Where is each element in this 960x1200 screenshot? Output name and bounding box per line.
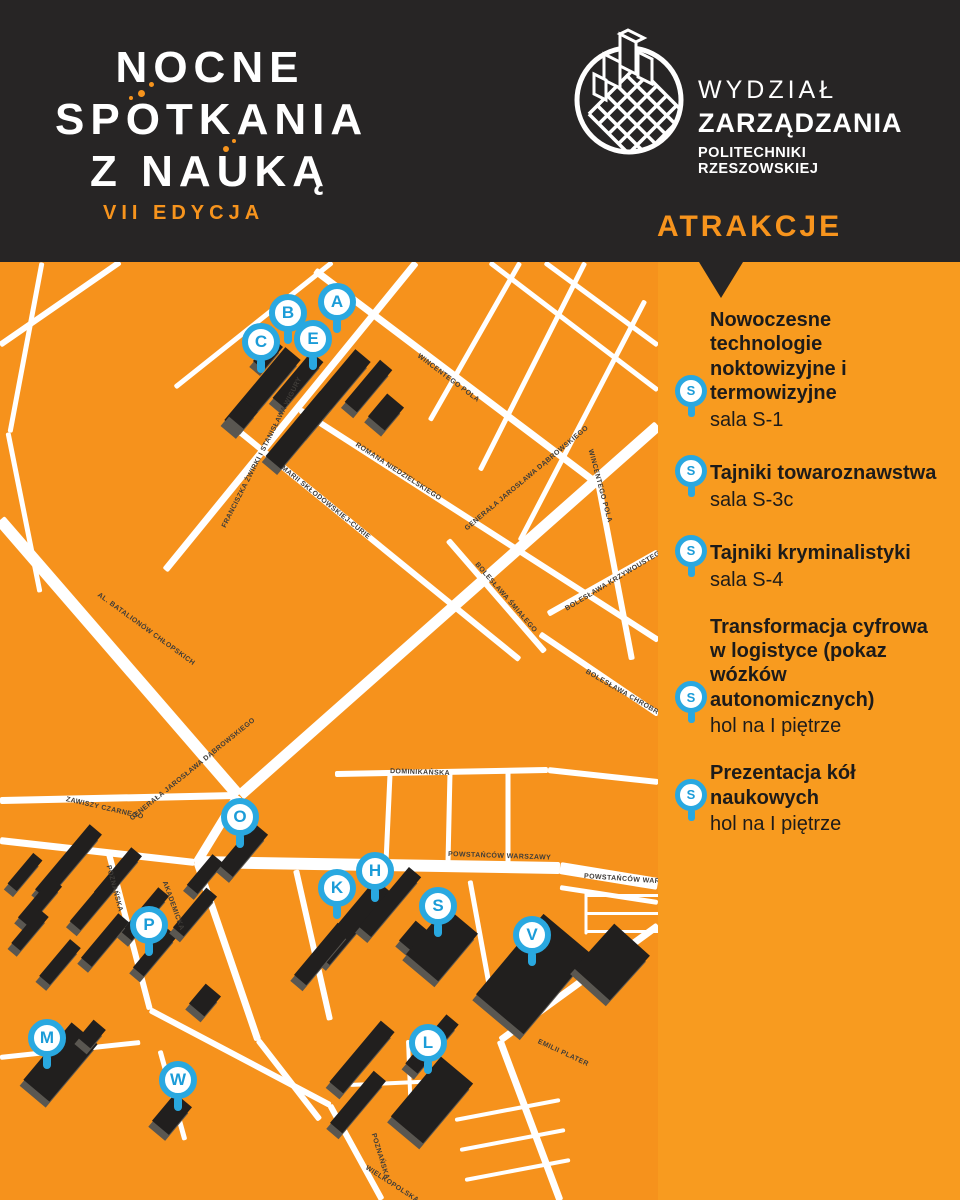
faculty-logo-text: WYDZIAŁ ZARZĄDZANIA POLITECHNIKI RZESZOW… — [698, 76, 928, 177]
pin-stem-icon — [424, 1059, 432, 1074]
attraction-title: Tajniki kryminalistyki — [710, 541, 938, 565]
faculty-name-line3: POLITECHNIKI RZESZOWSKIEJ — [698, 145, 928, 177]
map-pin-P: P — [130, 906, 168, 956]
pin-circle: S — [675, 779, 707, 811]
pin-circle: K — [318, 869, 356, 907]
campus-map: WINCENTEGO POLAWINCENTEGO POLAFRANCISZKA… — [0, 262, 658, 1200]
pin-stem-icon — [333, 318, 341, 333]
faculty-name-line1: WYDZIAŁ — [698, 76, 928, 105]
location-pin-icon: S — [672, 455, 710, 497]
event-logo-line2: SPOTKANIA — [55, 94, 365, 146]
event-logo-line1: NOCNE — [55, 42, 365, 94]
map-pins-layer: ABCEOHKSVPMLW — [0, 262, 658, 1200]
attraction-location: hol na I piętrze — [710, 714, 938, 739]
pin-stem-icon — [688, 405, 695, 417]
attraction-location: sala S-1 — [710, 408, 938, 433]
pin-stem-icon — [309, 355, 317, 370]
attractions-list: SNowoczesne technologie noktowizyjne i t… — [672, 308, 952, 859]
attraction-item: STajniki towaroznawstwasala S-3c — [672, 455, 952, 513]
pin-circle: S — [675, 681, 707, 713]
pin-stem-icon — [688, 485, 695, 497]
attraction-location: sala S-3c — [710, 488, 938, 513]
map-pin-V: V — [513, 916, 551, 966]
pin-circle: L — [409, 1024, 447, 1062]
attraction-location: sala S-4 — [710, 568, 938, 593]
attraction-title: Transformacja cyfrowa w logistyce (pokaz… — [710, 615, 938, 713]
attraction-title: Prezentacja kół naukowych — [710, 761, 938, 810]
pin-circle: H — [356, 852, 394, 890]
attraction-text: Tajniki kryminalistykisala S-4 — [710, 541, 938, 592]
pin-stem-icon — [528, 951, 536, 966]
faculty-name-line2: ZARZĄDZANIA — [698, 108, 928, 139]
header: NOCNE SPOTKANIA Z NAUKĄ VII EDYCJA — [0, 0, 960, 262]
pin-stem-icon — [43, 1054, 51, 1069]
pin-circle: M — [28, 1019, 66, 1057]
pin-circle: S — [419, 887, 457, 925]
flask-bubble-icon — [129, 96, 133, 100]
attraction-item: STransformacja cyfrowa w logistyce (poka… — [672, 615, 952, 740]
attraction-title: Tajniki towaroznawstwa — [710, 461, 938, 485]
map-pin-O: O — [221, 798, 259, 848]
pin-circle: S — [675, 455, 707, 487]
pin-circle: P — [130, 906, 168, 944]
attraction-title: Nowoczesne technologie noktowizyjne i te… — [710, 308, 938, 406]
map-pin-E: E — [294, 320, 332, 370]
attraction-text: Tajniki towaroznawstwasala S-3c — [710, 461, 938, 512]
map-pin-K: K — [318, 869, 356, 919]
faculty-logo-mark — [570, 26, 688, 158]
pin-circle: S — [675, 375, 707, 407]
pin-stem-icon — [688, 809, 695, 821]
pin-stem-icon — [236, 833, 244, 848]
location-pin-icon: S — [672, 681, 710, 723]
flask-bubble-icon — [138, 90, 145, 97]
poster: NOCNE SPOTKANIA Z NAUKĄ VII EDYCJA — [0, 0, 960, 1200]
pin-stem-icon — [284, 329, 292, 344]
pin-circle: S — [675, 535, 707, 567]
location-pin-icon: S — [672, 779, 710, 821]
map-pin-L: L — [409, 1024, 447, 1074]
attraction-location: hol na I piętrze — [710, 812, 938, 837]
event-logo: NOCNE SPOTKANIA Z NAUKĄ VII EDYCJA — [55, 42, 365, 225]
pin-circle: W — [159, 1061, 197, 1099]
map-pin-C: C — [242, 323, 280, 373]
attraction-text: Transformacja cyfrowa w logistyce (pokaz… — [710, 615, 938, 740]
pin-stem-icon — [371, 887, 379, 902]
pin-circle: C — [242, 323, 280, 361]
pin-stem-icon — [688, 711, 695, 723]
map-pin-M: M — [28, 1019, 66, 1069]
pin-stem-icon — [145, 941, 153, 956]
map-pin-S: S — [419, 887, 457, 937]
flask-bubble-icon — [223, 146, 229, 152]
attraction-item: STajniki kryminalistykisala S-4 — [672, 535, 952, 593]
attraction-text: Nowoczesne technologie noktowizyjne i te… — [710, 308, 938, 433]
attraction-text: Prezentacja kół naukowychhol na I piętrz… — [710, 761, 938, 837]
faculty-logo: WYDZIAŁ ZARZĄDZANIA POLITECHNIKI RZESZOW… — [570, 26, 688, 158]
map-pin-H: H — [356, 852, 394, 902]
pin-circle: A — [318, 283, 356, 321]
attractions-panel: SNowoczesne technologie noktowizyjne i t… — [658, 262, 960, 1200]
flask-bubble-icon — [232, 139, 236, 143]
pin-stem-icon — [333, 904, 341, 919]
pin-stem-icon — [174, 1096, 182, 1111]
attractions-heading: ATRAKCJE — [657, 210, 842, 244]
event-logo-line3: Z NAUKĄ — [55, 146, 365, 198]
location-pin-icon: S — [672, 375, 710, 417]
location-pin-icon: S — [672, 535, 710, 577]
flask-bubble-icon — [149, 82, 154, 87]
pin-stem-icon — [257, 358, 265, 373]
pin-stem-icon — [688, 565, 695, 577]
pin-circle: V — [513, 916, 551, 954]
attraction-item: SNowoczesne technologie noktowizyjne i t… — [672, 308, 952, 433]
map-pin-W: W — [159, 1061, 197, 1111]
pin-circle: E — [294, 320, 332, 358]
pin-stem-icon — [434, 922, 442, 937]
pin-circle: O — [221, 798, 259, 836]
event-edition: VII EDYCJA — [55, 202, 365, 225]
attraction-item: SPrezentacja kół naukowychhol na I piętr… — [672, 761, 952, 837]
